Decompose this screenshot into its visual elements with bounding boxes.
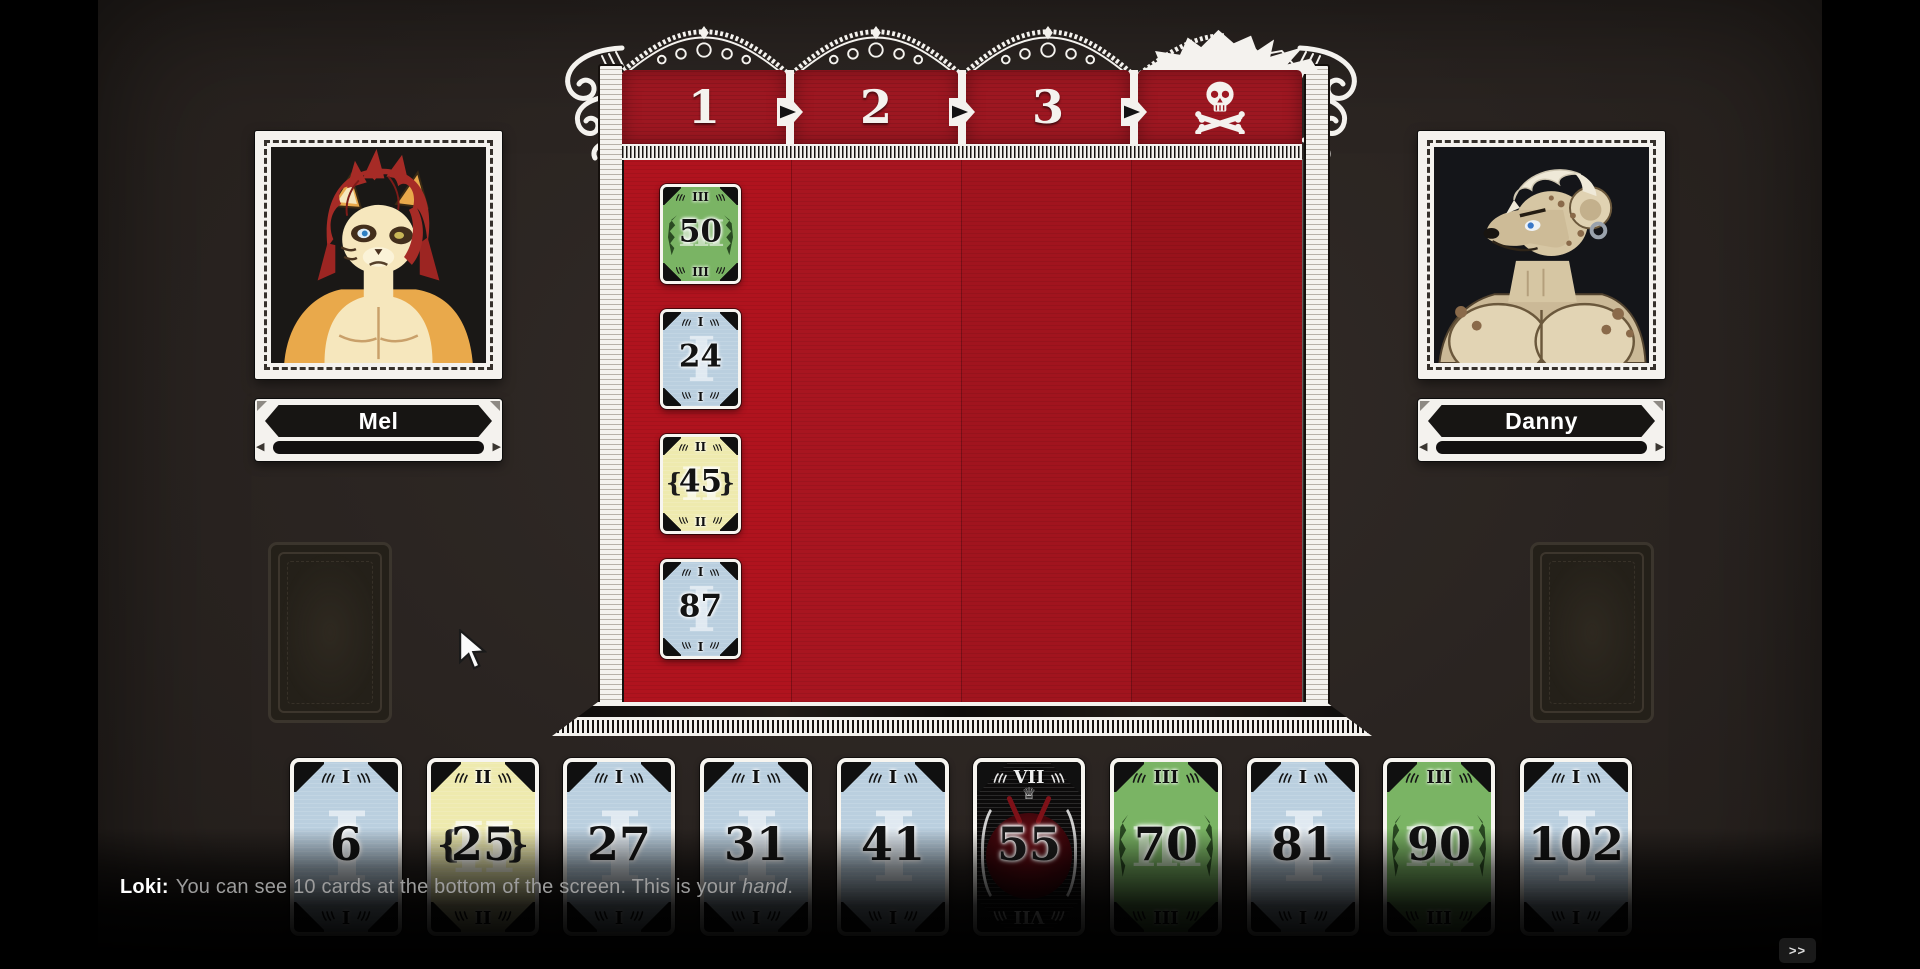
tier-top: II	[663, 441, 738, 453]
player-name-left: Mel	[359, 408, 399, 435]
player-bar-right	[1436, 441, 1647, 454]
column-3-header[interactable]: 3	[966, 70, 1130, 144]
tier-bottom: I	[663, 390, 738, 402]
mel-portrait-art	[271, 147, 486, 363]
tier-top: III	[663, 191, 738, 203]
player-bar-left	[273, 441, 484, 454]
tier-top: I	[1251, 769, 1355, 787]
board-card-87[interactable]: II87I	[660, 559, 741, 659]
tutorial-speaker: Loki:	[120, 876, 169, 898]
nameplate-ornament	[257, 401, 267, 411]
board-card-50[interactable]: IIIIII50III	[660, 184, 741, 284]
player-portrait-right	[1418, 131, 1665, 379]
tier-top: III	[1114, 769, 1218, 787]
board-frame-right-rail	[1304, 64, 1330, 706]
mouse-cursor	[457, 629, 487, 671]
tier-bottom: II	[663, 515, 738, 527]
tier-top: I	[567, 769, 671, 787]
portrait-stitch-border	[1427, 140, 1656, 370]
tier-top: I	[841, 769, 945, 787]
crown-icon: ♕	[977, 787, 1081, 803]
lace-arch-2	[784, 26, 968, 74]
board-column-skull[interactable]	[1132, 160, 1302, 702]
board-fringe-band	[622, 144, 1302, 160]
tier-top: VII	[977, 769, 1081, 787]
game-screen: 1 2 3	[0, 0, 1920, 969]
skull-crossbones-icon	[1191, 80, 1249, 134]
tier-bottom: I	[663, 640, 738, 652]
column-1-header[interactable]: 1	[622, 70, 786, 144]
right-facedown-card	[1530, 542, 1654, 723]
player-nameplate-right: Danny ◀ ▶	[1418, 399, 1665, 461]
tier-top: I	[294, 769, 398, 787]
board-card-45[interactable]: II{}II45II	[660, 434, 741, 534]
column-2-label: 2	[860, 80, 892, 134]
player-portrait-left	[255, 131, 502, 379]
board-base-shelf	[552, 702, 1372, 736]
bar-arrow-icon: ◀	[256, 442, 264, 453]
tier-bottom: III	[663, 265, 738, 277]
nameplate-ornament	[1420, 401, 1430, 411]
board-card-24[interactable]: II24I	[660, 309, 741, 409]
left-facedown-card	[268, 542, 392, 723]
bar-arrow-icon: ▶	[1656, 442, 1664, 453]
board-column-2[interactable]	[792, 160, 962, 702]
tutorial-message: Loki:You can see 10 cards at the bottom …	[120, 876, 793, 899]
bar-arrow-icon: ◀	[1419, 442, 1427, 453]
player-name-banner: Danny	[1428, 405, 1655, 437]
tier-top: II	[431, 769, 535, 787]
card-value: 45	[663, 467, 738, 498]
player-name-banner: Mel	[265, 405, 492, 437]
column-skull-header[interactable]	[1138, 70, 1302, 144]
lace-arch-torn	[1128, 26, 1328, 74]
portrait-stitch-border	[264, 140, 493, 370]
card-value: 50	[663, 217, 738, 248]
player-nameplate-left: Mel ◀ ▶	[255, 399, 502, 461]
player-name-right: Danny	[1505, 408, 1578, 435]
column-2-header[interactable]: 2	[794, 70, 958, 144]
card-value: 87	[663, 592, 738, 623]
column-1-label: 1	[688, 80, 720, 134]
tier-top: I	[704, 769, 808, 787]
nameplate-ornament	[1653, 401, 1663, 411]
board-frame-left-rail	[598, 64, 624, 706]
card-value: 24	[663, 342, 738, 373]
bar-arrow-icon: ▶	[493, 442, 501, 453]
danny-portrait-art	[1434, 147, 1649, 363]
tier-top: III	[1387, 769, 1491, 787]
lace-arch-3	[956, 26, 1140, 74]
tier-top: I	[663, 316, 738, 328]
tier-top: I	[663, 566, 738, 578]
nameplate-ornament	[490, 401, 500, 411]
lace-arch-1	[612, 26, 796, 74]
advance-button[interactable]: >>	[1779, 938, 1816, 963]
board-column-3[interactable]	[962, 160, 1132, 702]
tier-top: I	[1524, 769, 1628, 787]
column-3-label: 3	[1032, 80, 1064, 134]
